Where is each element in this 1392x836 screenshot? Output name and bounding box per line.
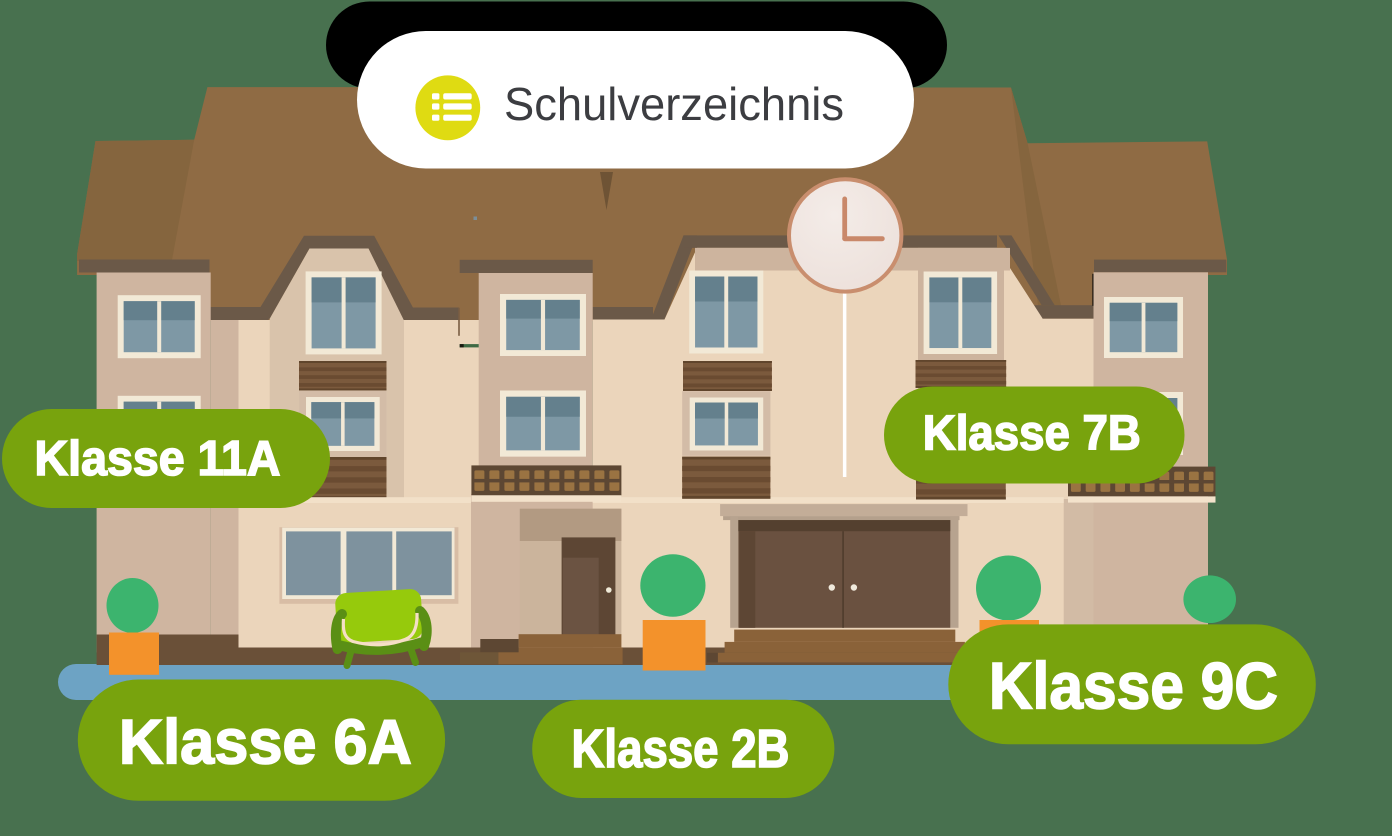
svg-text:Klasse 9C: Klasse 9C — [989, 648, 1278, 722]
svg-text:Klasse 11A: Klasse 11A — [35, 431, 281, 486]
svg-text:Schulverzeichnis: Schulverzeichnis — [504, 78, 844, 130]
svg-text:Klasse 6A: Klasse 6A — [119, 707, 412, 777]
svg-text:Klasse 2B: Klasse 2B — [572, 720, 790, 779]
svg-text:Klasse 7B: Klasse 7B — [923, 405, 1141, 460]
